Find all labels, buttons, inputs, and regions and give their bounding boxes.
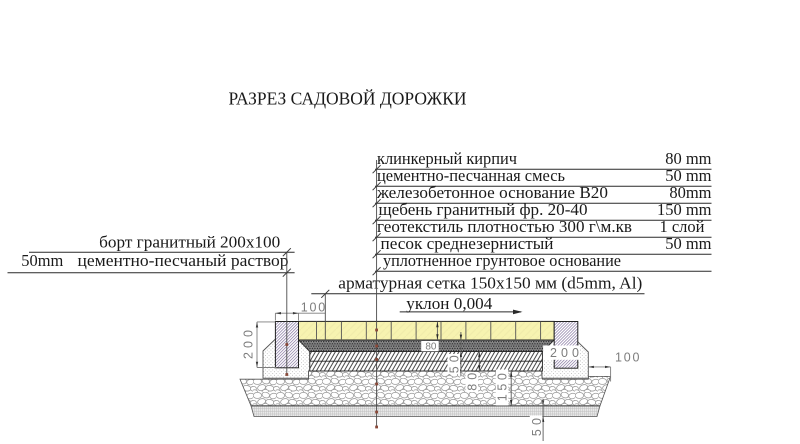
svg-text:200: 200: [242, 330, 256, 359]
svg-text:100: 100: [615, 350, 640, 364]
svg-text:100: 100: [301, 300, 326, 314]
svg-text:150: 150: [496, 373, 510, 401]
svg-text:арматурная сетка 150x150 мм (d: арматурная сетка 150x150 мм (d5mm, Al): [338, 274, 642, 293]
svg-text:200: 200: [550, 346, 579, 360]
svg-text:борт гранитный 200x100: борт гранитный 200x100: [99, 233, 280, 252]
svg-text:80: 80: [425, 342, 437, 353]
svg-text:50mm: 50mm: [21, 251, 63, 270]
svg-text:50 mm: 50 mm: [665, 234, 711, 253]
svg-text:РАЗРЕЗ САДОВОЙ ДОРОЖКИ: РАЗРЕЗ САДОВОЙ ДОРОЖКИ: [229, 88, 467, 108]
svg-text:уплотненное грунтовое основани: уплотненное грунтовое основание: [383, 251, 621, 270]
svg-text:уклон 0,004: уклон 0,004: [406, 294, 493, 313]
svg-text:цементно-песчаный раствор: цементно-песчаный раствор: [78, 251, 289, 270]
